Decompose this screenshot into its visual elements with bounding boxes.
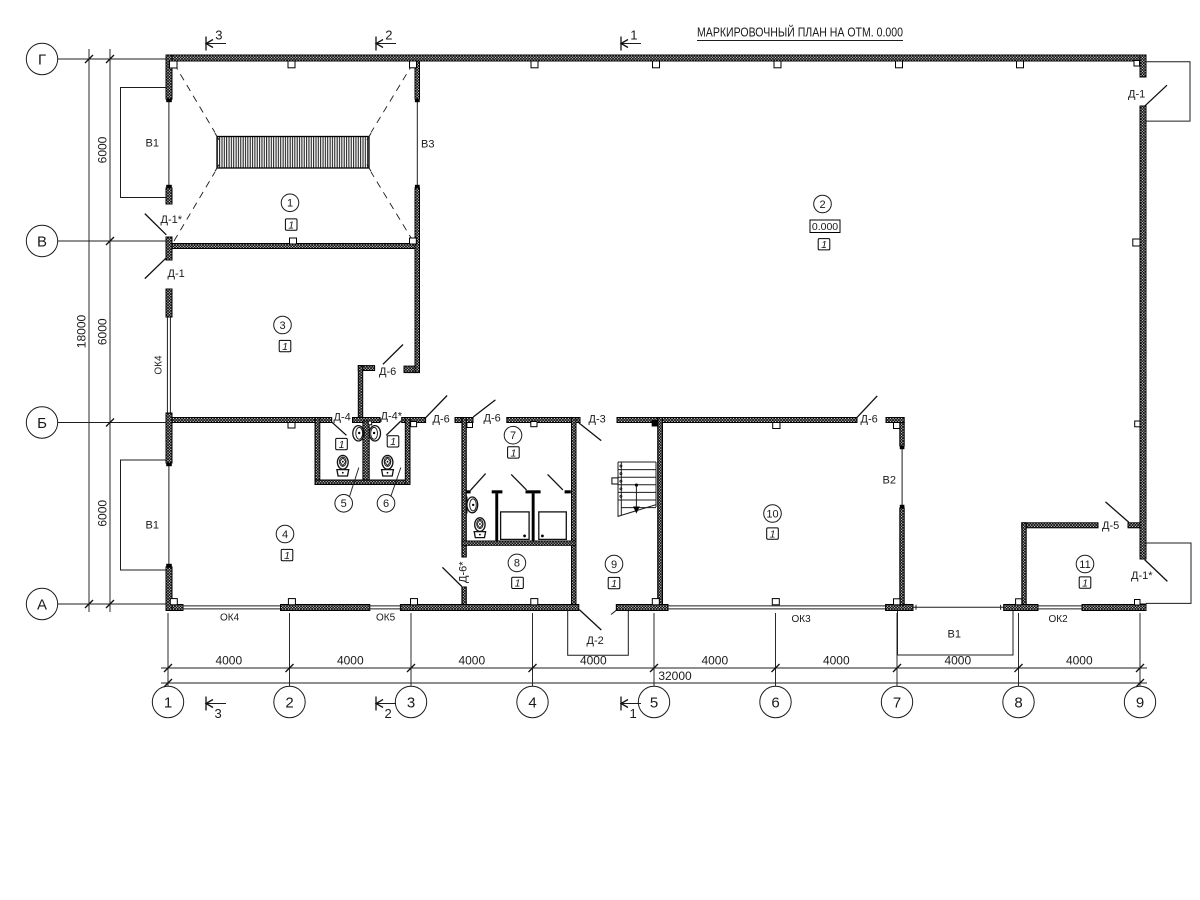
svg-text:2: 2 <box>819 199 825 211</box>
svg-text:6: 6 <box>771 694 779 711</box>
svg-text:В2: В2 <box>883 475 896 487</box>
svg-text:9: 9 <box>611 559 617 571</box>
svg-text:1: 1 <box>611 578 617 590</box>
svg-text:Д-5: Д-5 <box>1102 520 1119 532</box>
svg-text:ОК4: ОК4 <box>220 613 240 624</box>
svg-text:4000: 4000 <box>823 654 850 668</box>
svg-text:2: 2 <box>385 706 392 721</box>
svg-text:Г: Г <box>38 51 46 68</box>
svg-text:1: 1 <box>164 694 172 711</box>
svg-text:ОК3: ОК3 <box>792 614 812 625</box>
svg-text:6: 6 <box>383 498 389 510</box>
svg-text:1: 1 <box>282 341 288 353</box>
svg-text:1: 1 <box>287 198 293 210</box>
svg-text:1: 1 <box>630 706 637 721</box>
svg-text:8: 8 <box>1014 694 1022 711</box>
svg-text:9: 9 <box>1136 694 1144 711</box>
svg-text:1: 1 <box>284 550 290 562</box>
svg-text:Д-4: Д-4 <box>334 412 351 424</box>
svg-text:2: 2 <box>285 694 293 711</box>
svg-text:3: 3 <box>279 320 285 332</box>
svg-text:2: 2 <box>385 28 392 43</box>
svg-text:ОК2: ОК2 <box>1049 614 1069 625</box>
svg-text:1: 1 <box>515 578 521 590</box>
svg-text:ОК5: ОК5 <box>376 613 396 624</box>
svg-text:Д-6: Д-6 <box>484 413 501 425</box>
svg-text:1: 1 <box>390 436 396 448</box>
svg-text:7: 7 <box>510 430 516 442</box>
svg-text:Д-6*: Д-6* <box>458 561 470 583</box>
svg-text:Д-2: Д-2 <box>587 635 604 647</box>
svg-text:1: 1 <box>288 219 294 231</box>
svg-text:18000: 18000 <box>75 314 89 348</box>
svg-text:8: 8 <box>514 558 520 570</box>
svg-text:Д-3: Д-3 <box>589 414 606 426</box>
svg-text:11: 11 <box>1079 559 1090 571</box>
svg-text:1: 1 <box>770 528 776 540</box>
svg-text:В1: В1 <box>146 520 159 532</box>
svg-text:В3: В3 <box>421 139 434 151</box>
svg-text:Д-6: Д-6 <box>861 414 878 426</box>
svg-text:5: 5 <box>341 498 347 510</box>
svg-text:А: А <box>37 596 47 613</box>
svg-text:3: 3 <box>407 694 415 711</box>
svg-text:1: 1 <box>339 439 345 451</box>
svg-text:6000: 6000 <box>96 318 110 345</box>
svg-text:Д-1: Д-1 <box>168 268 185 280</box>
svg-text:В1: В1 <box>146 138 159 150</box>
svg-text:3: 3 <box>215 706 222 721</box>
svg-text:32000: 32000 <box>658 669 692 683</box>
svg-text:3: 3 <box>215 28 222 43</box>
svg-text:Д-6: Д-6 <box>433 414 450 426</box>
svg-text:4000: 4000 <box>701 654 728 668</box>
svg-text:В1: В1 <box>948 629 961 641</box>
svg-text:4000: 4000 <box>1066 654 1093 668</box>
svg-text:1: 1 <box>1082 577 1088 589</box>
svg-text:В: В <box>37 233 47 250</box>
svg-text:7: 7 <box>893 694 901 711</box>
svg-text:4: 4 <box>282 529 288 541</box>
svg-text:МАРКИРОВОЧНЫЙ ПЛАН НА ОТМ. 0.0: МАРКИРОВОЧНЫЙ ПЛАН НА ОТМ. 0.000 <box>697 25 903 40</box>
svg-text:4: 4 <box>528 694 536 711</box>
svg-text:6000: 6000 <box>96 136 110 163</box>
svg-text:4000: 4000 <box>458 654 485 668</box>
svg-text:10: 10 <box>766 508 778 520</box>
svg-text:1: 1 <box>510 447 516 459</box>
svg-text:Д-6: Д-6 <box>379 366 396 378</box>
svg-text:ОК4: ОК4 <box>154 355 165 375</box>
svg-text:4000: 4000 <box>944 654 971 668</box>
svg-text:6000: 6000 <box>96 500 110 527</box>
svg-text:Б: Б <box>37 415 47 432</box>
svg-text:4000: 4000 <box>215 654 242 668</box>
svg-text:5: 5 <box>650 694 658 711</box>
svg-text:Д-1*: Д-1* <box>161 214 183 226</box>
svg-text:Д-1*: Д-1* <box>1131 570 1153 582</box>
svg-text:1: 1 <box>630 28 637 43</box>
svg-text:1: 1 <box>821 239 827 251</box>
svg-text:4000: 4000 <box>337 654 364 668</box>
svg-text:Д-4*: Д-4* <box>381 411 403 423</box>
svg-text:Д-1: Д-1 <box>1128 89 1145 101</box>
svg-text:0.000: 0.000 <box>812 221 838 233</box>
